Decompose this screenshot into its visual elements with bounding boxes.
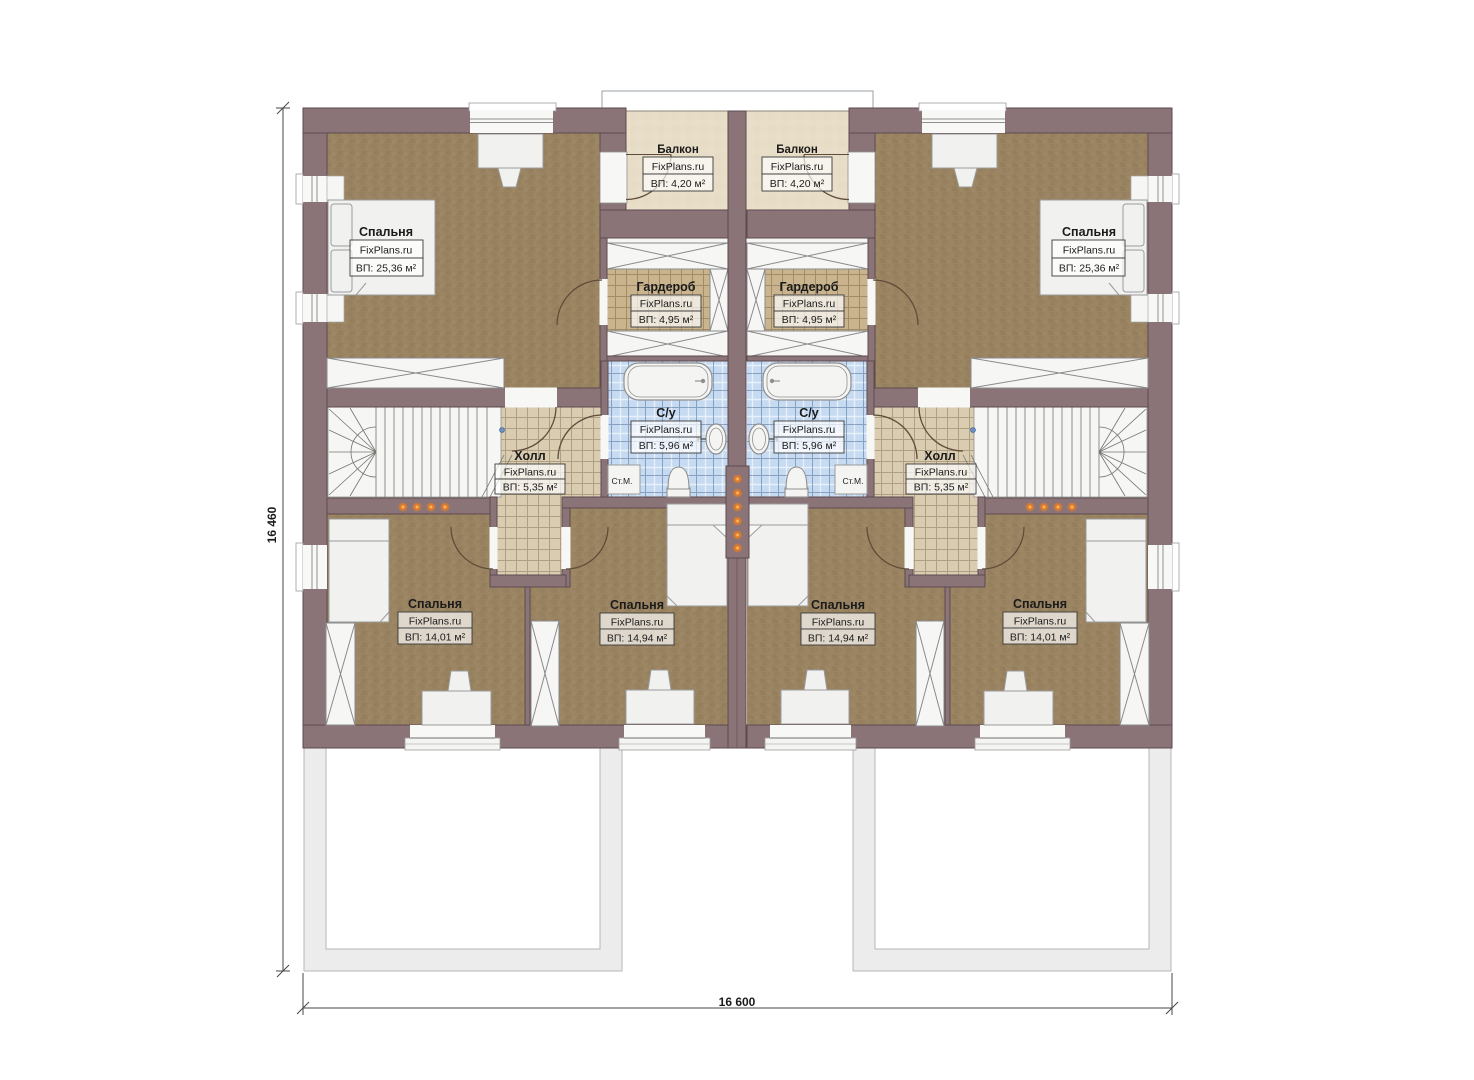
svg-text:Балкон: Балкон: [657, 144, 699, 156]
svg-text:Спальня: Спальня: [610, 598, 664, 612]
svg-text:FixPlans.ru: FixPlans.ru: [360, 245, 413, 257]
svg-text:ВП: 14,01 м²: ВП: 14,01 м²: [1010, 632, 1071, 644]
svg-text:FixPlans.ru: FixPlans.ru: [812, 617, 865, 629]
svg-text:FixPlans.ru: FixPlans.ru: [1014, 616, 1067, 628]
svg-text:ВП: 4,20 м²: ВП: 4,20 м²: [651, 178, 706, 190]
svg-text:Спальня: Спальня: [408, 597, 462, 611]
svg-text:ВП: 4,20 м²: ВП: 4,20 м²: [770, 178, 825, 190]
svg-text:FixPlans.ru: FixPlans.ru: [1063, 245, 1116, 257]
svg-text:FixPlans.ru: FixPlans.ru: [915, 467, 968, 479]
svg-text:Ст.М.: Ст.М.: [612, 476, 633, 486]
svg-text:Гардероб: Гардероб: [636, 280, 695, 294]
svg-text:FixPlans.ru: FixPlans.ru: [640, 424, 693, 436]
svg-text:FixPlans.ru: FixPlans.ru: [409, 616, 462, 628]
svg-text:Спальня: Спальня: [1013, 597, 1067, 611]
svg-text:С/у: С/у: [799, 406, 819, 420]
svg-text:Балкон: Балкон: [776, 144, 818, 156]
svg-text:FixPlans.ru: FixPlans.ru: [771, 161, 824, 173]
svg-text:FixPlans.ru: FixPlans.ru: [652, 161, 705, 173]
svg-text:С/у: С/у: [656, 406, 676, 420]
svg-text:ВП: 5,96 м²: ВП: 5,96 м²: [782, 440, 837, 452]
svg-text:ВП: 4,95 м²: ВП: 4,95 м²: [639, 314, 694, 326]
svg-text:FixPlans.ru: FixPlans.ru: [783, 298, 836, 310]
svg-text:Гардероб: Гардероб: [779, 280, 838, 294]
svg-text:ВП: 14,94 м²: ВП: 14,94 м²: [607, 633, 668, 645]
svg-text:Спальня: Спальня: [811, 598, 865, 612]
svg-text:ВП: 5,96 м²: ВП: 5,96 м²: [639, 440, 694, 452]
svg-text:16 460: 16 460: [265, 506, 279, 543]
svg-text:Холл: Холл: [924, 449, 955, 463]
svg-text:Спальня: Спальня: [359, 225, 413, 239]
svg-text:Ст.М.: Ст.М.: [843, 476, 864, 486]
svg-text:FixPlans.ru: FixPlans.ru: [611, 617, 664, 629]
svg-text:FixPlans.ru: FixPlans.ru: [783, 424, 836, 436]
svg-text:ВП: 4,95 м²: ВП: 4,95 м²: [782, 314, 837, 326]
svg-text:FixPlans.ru: FixPlans.ru: [640, 298, 693, 310]
svg-text:ВП: 5,35 м²: ВП: 5,35 м²: [503, 482, 558, 494]
svg-text:16 600: 16 600: [719, 995, 756, 1009]
svg-text:ВП: 14,01 м²: ВП: 14,01 м²: [405, 632, 466, 644]
svg-text:FixPlans.ru: FixPlans.ru: [504, 467, 557, 479]
svg-text:Холл: Холл: [514, 449, 545, 463]
svg-text:Спальня: Спальня: [1062, 225, 1116, 239]
svg-text:ВП: 14,94 м²: ВП: 14,94 м²: [808, 633, 869, 645]
svg-text:ВП: 25,36 м²: ВП: 25,36 м²: [1059, 263, 1120, 275]
svg-text:ВП: 5,35 м²: ВП: 5,35 м²: [914, 482, 969, 494]
svg-text:ВП: 25,36 м²: ВП: 25,36 м²: [356, 263, 417, 275]
